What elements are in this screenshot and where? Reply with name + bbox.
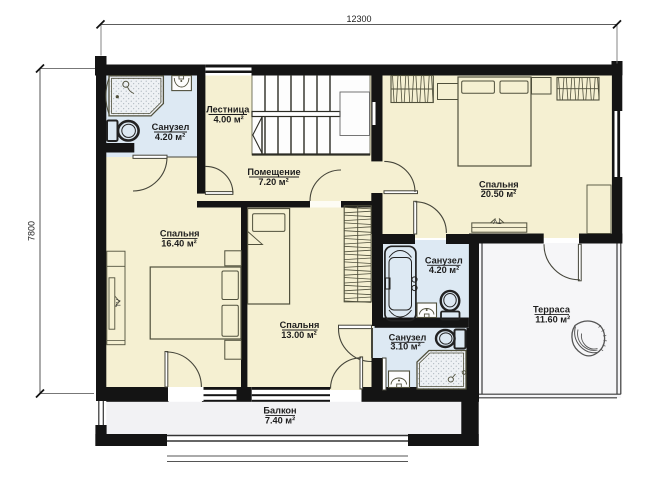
svg-text:4.20 м²: 4.20 м² (155, 132, 185, 142)
svg-text:7.20 м²: 7.20 м² (258, 177, 288, 187)
svg-text:Помещение: Помещение (247, 167, 300, 177)
svg-text:12300: 12300 (346, 14, 371, 24)
svg-text:Терраса: Терраса (533, 305, 571, 315)
svg-text:Лестница: Лестница (206, 105, 250, 115)
svg-text:20.50 м²: 20.50 м² (481, 189, 516, 199)
svg-text:16.40 м²: 16.40 м² (161, 238, 196, 248)
svg-text:3.10 м²: 3.10 м² (390, 341, 420, 351)
svg-text:TV: TV (116, 298, 123, 307)
svg-text:11.60 м²: 11.60 м² (535, 315, 570, 325)
svg-text:4.00 м²: 4.00 м² (213, 114, 243, 124)
svg-text:Спальня: Спальня (160, 228, 200, 238)
svg-text:TV: TV (492, 218, 501, 225)
svg-text:4.20 м²: 4.20 м² (429, 265, 459, 275)
svg-text:Санузел: Санузел (152, 122, 190, 132)
svg-text:Спальня: Спальня (479, 179, 519, 189)
svg-text:Санузел: Санузел (425, 255, 463, 265)
svg-text:7800: 7800 (27, 221, 37, 241)
svg-text:Балкон: Балкон (263, 406, 296, 416)
svg-text:7.40 м²: 7.40 м² (265, 416, 295, 426)
svg-text:13.00 м²: 13.00 м² (281, 330, 316, 340)
svg-text:Спальня: Спальня (280, 320, 320, 330)
